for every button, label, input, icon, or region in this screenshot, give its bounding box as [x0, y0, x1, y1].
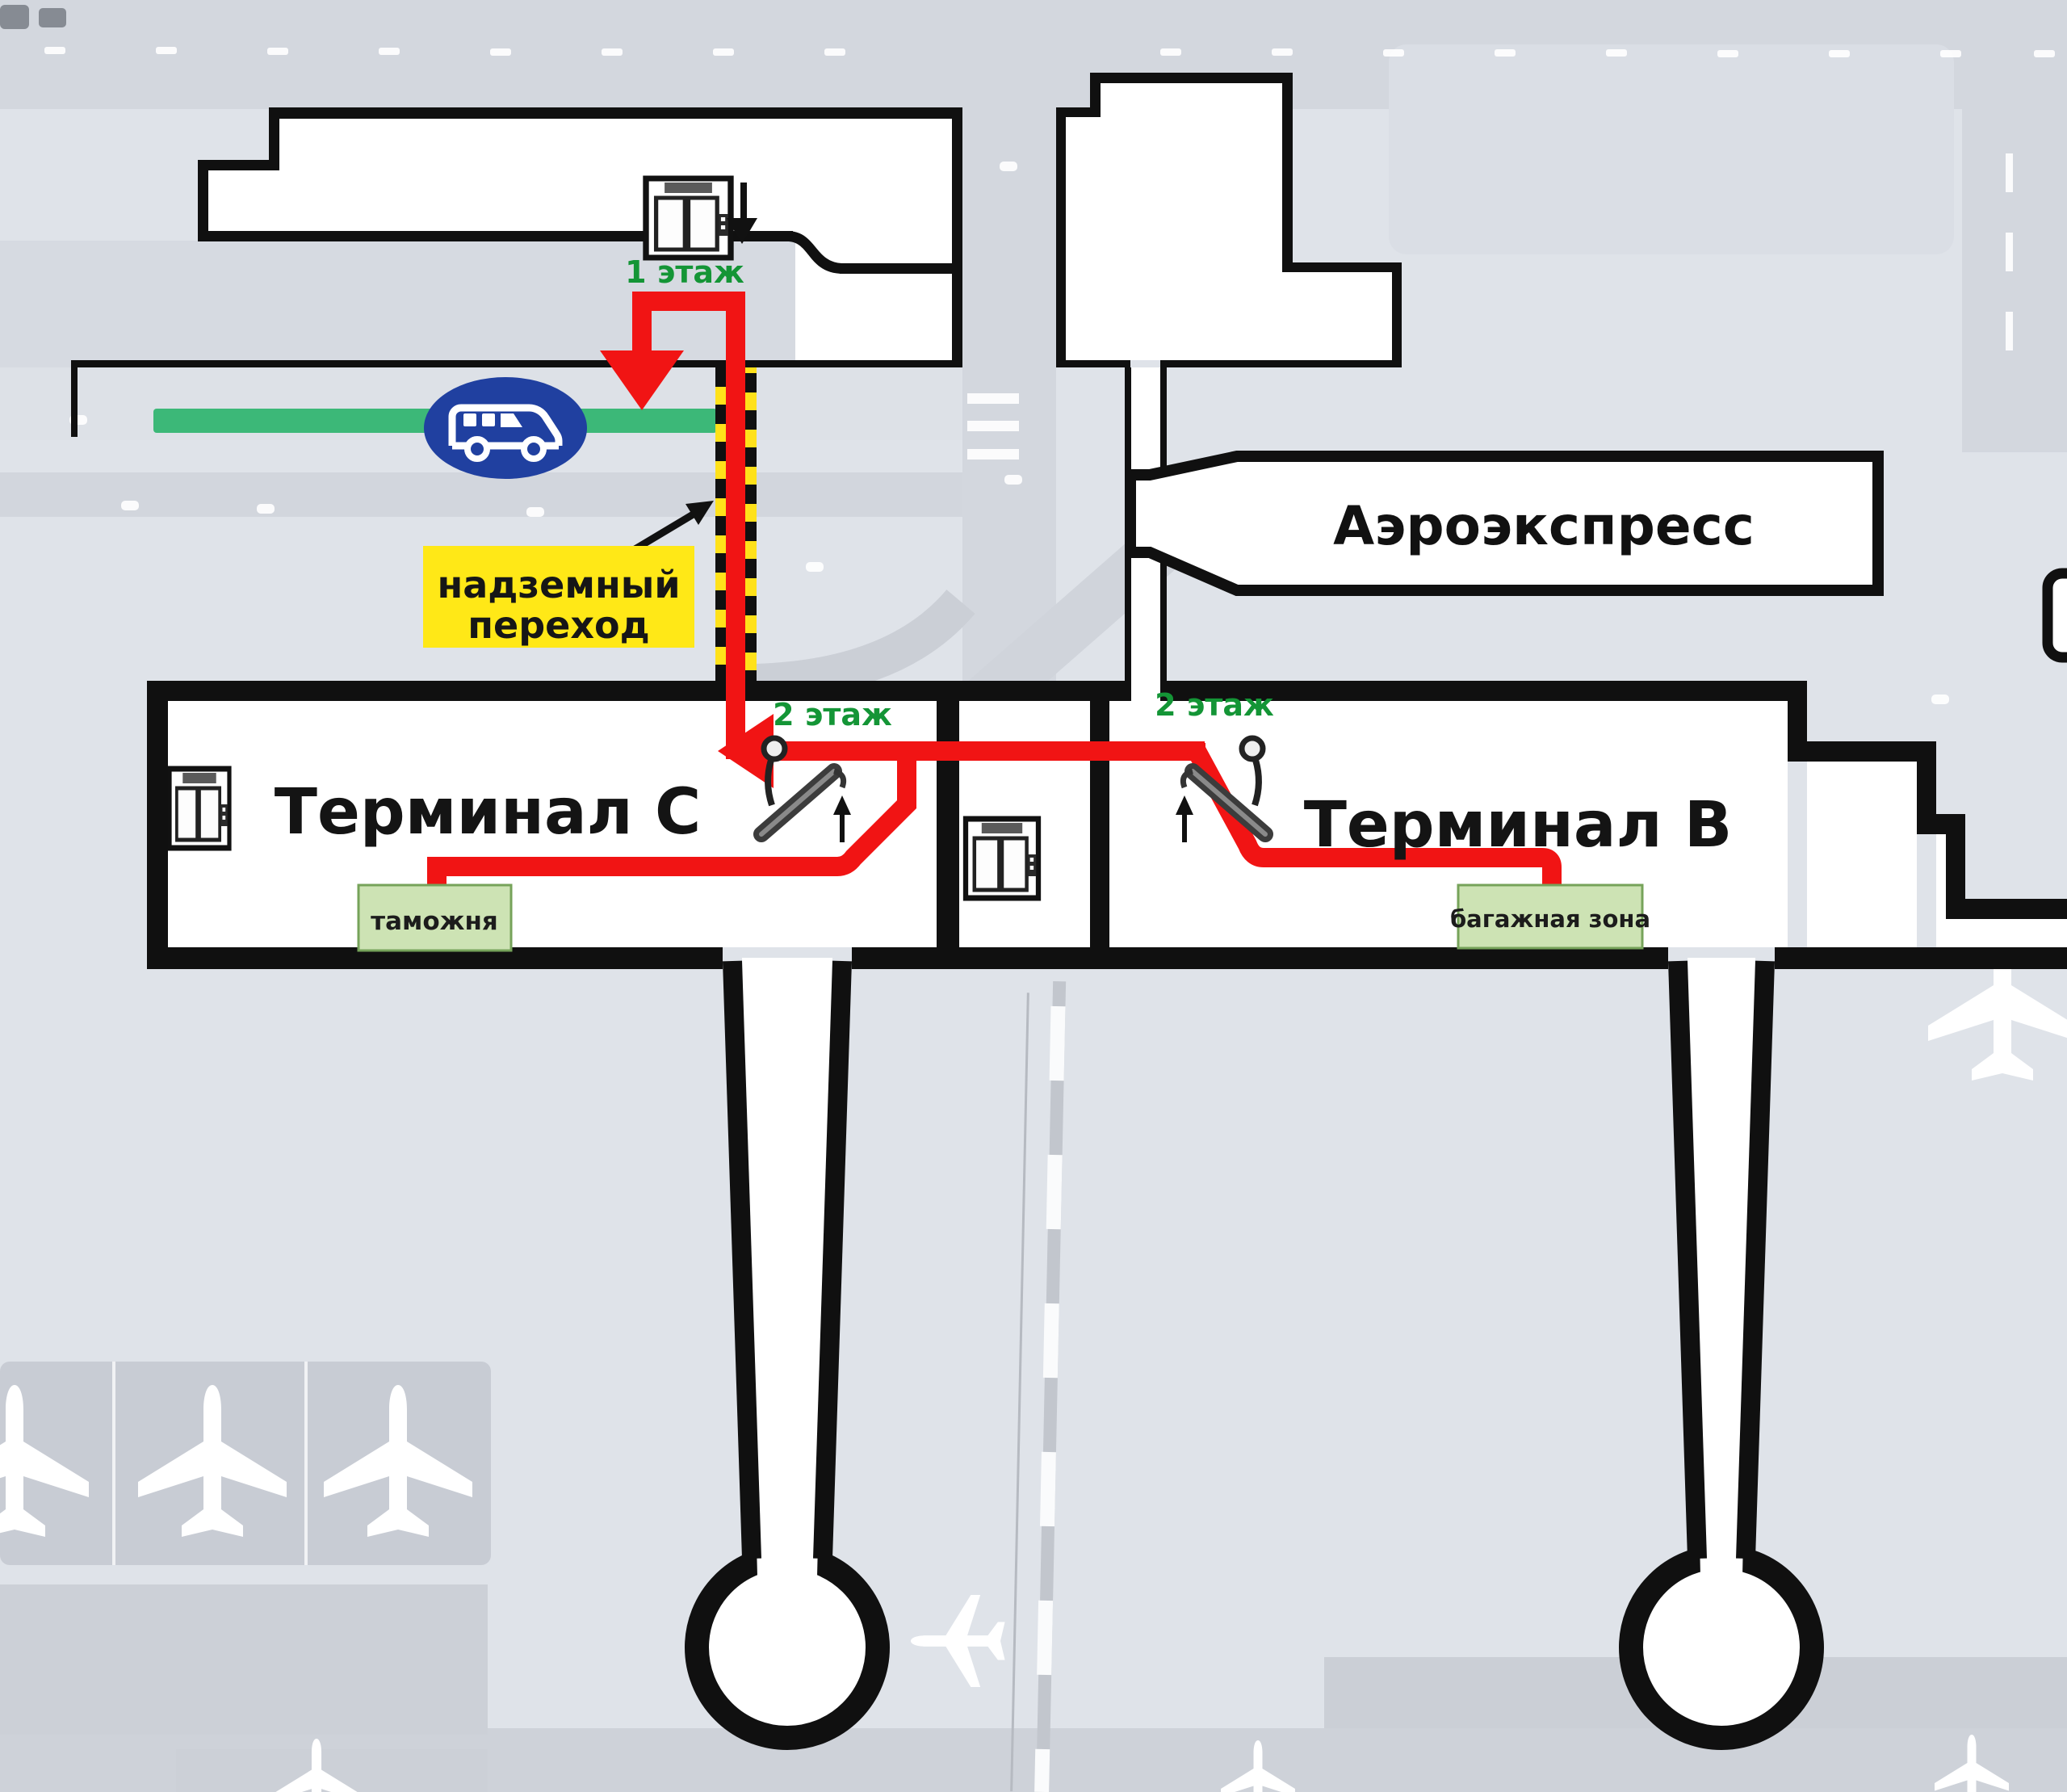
customs-label-text: таможня — [371, 907, 498, 936]
airport-terminal-map: Аэроэкспресс — [0, 0, 2067, 1792]
floor-2-label-terminal-c: 2 этаж — [773, 697, 892, 732]
floor-2-label-terminal-b: 2 этаж — [1155, 687, 1274, 723]
elevator-icon — [170, 769, 229, 848]
overpass-label-line2: переход — [467, 603, 650, 647]
elevator-icon — [966, 819, 1038, 898]
terminal-c-title: Терминал C — [275, 776, 701, 849]
terminal-b-title: Терминал B — [1304, 789, 1733, 862]
aeroexpress-label: Аэроэкспресс — [1333, 495, 1755, 557]
aeroexpress-banner: Аэроэкспресс — [1130, 456, 1878, 590]
baggage-zone-label-text: багажная зона — [1450, 905, 1650, 933]
customs-label: таможня — [358, 885, 511, 951]
overpass-label: надземный переход — [423, 546, 694, 648]
overpass-label-line1: надземный — [437, 563, 680, 606]
elevator-icon — [646, 178, 731, 258]
floor-1-label: 1 этаж — [625, 254, 744, 290]
baggage-zone-label: багажная зона — [1450, 885, 1650, 948]
bus-icon — [424, 377, 587, 479]
right-edge-structure — [2048, 573, 2067, 657]
